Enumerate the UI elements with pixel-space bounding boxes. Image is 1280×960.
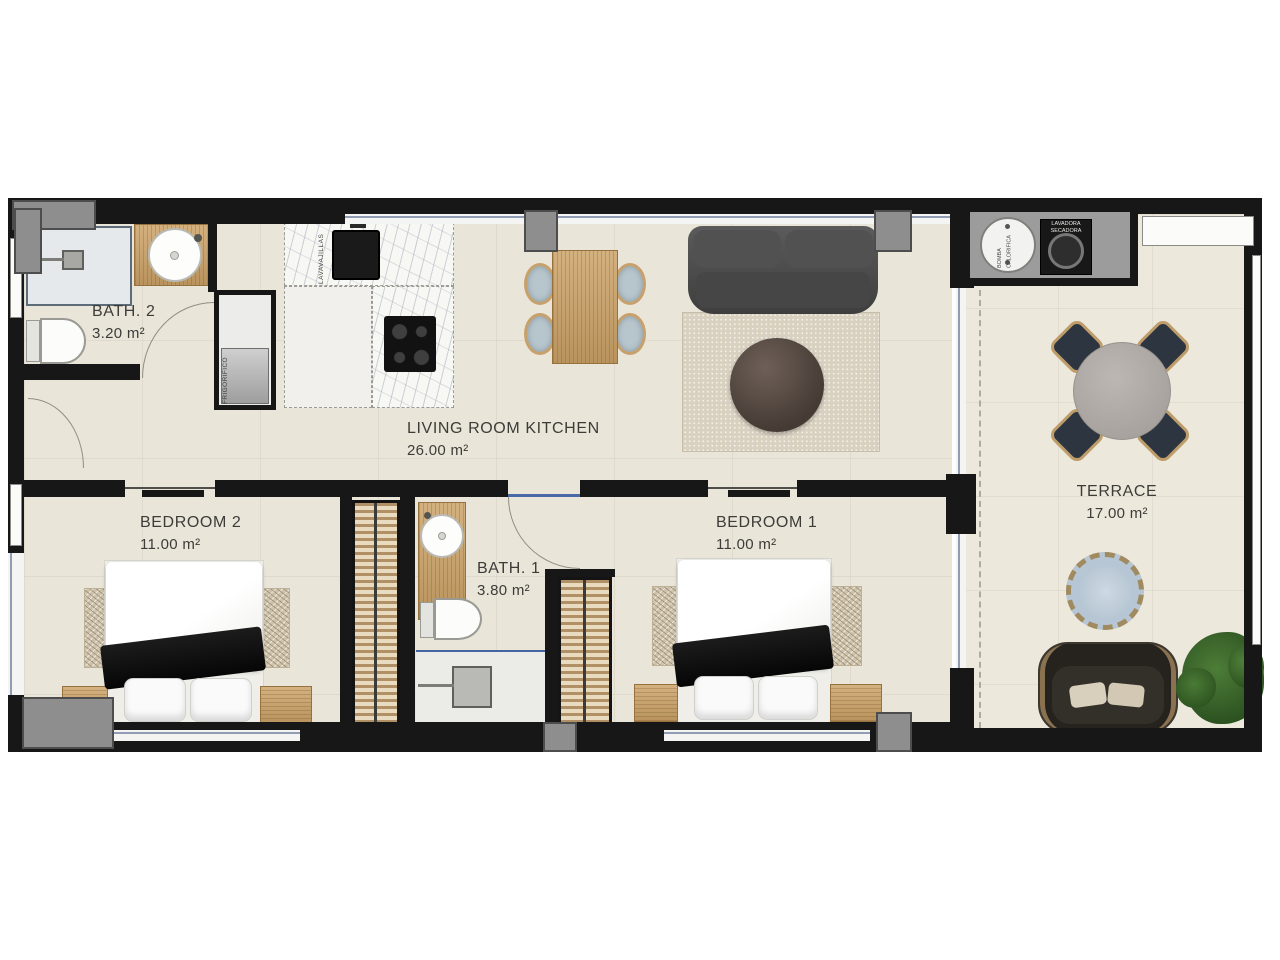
- fridge-label: FRIGORIFICO: [222, 350, 233, 404]
- nightstand: [830, 684, 882, 722]
- toilet-tank-bath1: [420, 602, 434, 638]
- sink-drain-bath1: [438, 532, 446, 540]
- sofa-back-cushion: [785, 230, 873, 268]
- wall-divider-bottom: [950, 668, 974, 752]
- wall-bedrooms-b: [215, 480, 340, 497]
- sofa-seat: [696, 272, 870, 308]
- sliding-door-leaf-bedroom1: [728, 490, 790, 497]
- nightstand: [634, 684, 678, 722]
- wall-bath1-right: [545, 569, 558, 740]
- heat-pump-label: BOMBA CALORIFICA: [996, 222, 1018, 268]
- sliding-door-leaf-bedroom2: [142, 490, 204, 497]
- room-area: 11.00 m²: [716, 534, 817, 555]
- room-label-bedroom1: BEDROOM 1 11.00 m²: [716, 512, 817, 555]
- terrace-table: [1073, 342, 1171, 440]
- toilet-tank-bath2: [26, 320, 40, 362]
- dining-chair: [614, 263, 646, 305]
- window-bedroom2-bottom: [100, 730, 300, 741]
- wardrobe-divider: [583, 580, 586, 735]
- faucet-bath1: [424, 512, 431, 519]
- outdoor-sofa-pillow: [1107, 682, 1145, 708]
- terrace-lounge-center: [1080, 566, 1132, 618]
- wardrobe-bedroom1: [558, 577, 612, 738]
- sliding-door-rail-bedroom1: [708, 487, 797, 489]
- door-leaf-bath1: [508, 494, 580, 497]
- slider-glazing-lower: [956, 534, 966, 668]
- slider-glazing-upper: [956, 288, 966, 474]
- washer-dryer-label: LAVADORA SECADORA: [1041, 221, 1091, 235]
- kitchen-sink: [332, 230, 380, 280]
- room-name: LIVING ROOM KITCHEN: [407, 418, 600, 440]
- sofa-back-cushion: [693, 230, 781, 268]
- sink-drain-bath2: [170, 251, 179, 260]
- wardrobe-divider: [374, 503, 377, 735]
- pillar-bottom-right: [876, 712, 912, 752]
- room-area: 17.00 m²: [1057, 503, 1177, 524]
- room-area: 3.80 m²: [477, 580, 540, 601]
- bed2-pillow: [124, 678, 186, 722]
- pillar-left-upper: [14, 208, 42, 274]
- kitchen-cabinet-lower: [284, 286, 372, 408]
- window-top-living: [345, 214, 950, 224]
- room-area: 3.20 m²: [92, 323, 155, 344]
- room-name: BEDROOM 2: [140, 512, 241, 534]
- sliding-door-rail-bedroom2: [125, 487, 215, 489]
- room-label-bath1: BATH. 1 3.80 m²: [477, 558, 540, 601]
- room-name: BATH. 1: [477, 558, 540, 580]
- nightstand: [260, 686, 312, 724]
- shower-head-bath2: [62, 250, 84, 270]
- wall-top-living: [345, 198, 956, 214]
- wall-bedrooms-a: [8, 480, 125, 497]
- wall-wardrobe1-left: [340, 497, 352, 740]
- outdoor-sofa: [1038, 642, 1178, 734]
- room-area: 11.00 m²: [140, 534, 241, 555]
- room-name: BEDROOM 1: [716, 512, 817, 534]
- dining-chair: [614, 313, 646, 355]
- wall-bottom-terrace: [956, 728, 1262, 752]
- room-name: TERRACE: [1057, 481, 1177, 503]
- wall-bedrooms-e: [797, 480, 952, 497]
- shower-head-bath1: [452, 666, 492, 708]
- wall-wardrobe2-top: [545, 569, 615, 577]
- shower-arm-bath1: [418, 684, 454, 687]
- bed2-pillow: [190, 678, 252, 722]
- faucet-bath2: [194, 234, 202, 242]
- coffee-table: [730, 338, 824, 432]
- pillar-bottom-mid: [543, 722, 577, 752]
- wall-bath1-left: [400, 497, 415, 740]
- planter-top-right: [1142, 216, 1254, 246]
- toilet-bowl-bath1: [434, 598, 482, 640]
- window-bedroom1-bottom: [664, 730, 870, 741]
- window-bedroom2-left: [8, 553, 24, 695]
- room-label-terrace: TERRACE 17.00 m²: [1057, 481, 1177, 524]
- wall-bath2-bottom: [8, 364, 140, 380]
- washer-door: [1048, 233, 1084, 269]
- wardrobe-bedroom2: [352, 500, 400, 738]
- dining-table: [552, 250, 618, 364]
- sofa: [688, 226, 878, 314]
- bed1-pillow: [758, 676, 818, 720]
- room-label-bedroom2: BEDROOM 2 11.00 m²: [140, 512, 241, 555]
- room-name: BATH. 2: [92, 301, 155, 323]
- toilet-bowl-bath2: [40, 318, 86, 364]
- pillar-top-right: [874, 210, 912, 252]
- bed1-pillow: [694, 676, 754, 720]
- window-hall: [10, 484, 22, 546]
- room-area: 26.00 m²: [407, 440, 600, 461]
- pillar-bottom-left: [22, 697, 114, 749]
- floor-plan: LAVAVAJILLAS FRIGORIFICO BOMBA CA: [0, 0, 1280, 960]
- planter-right: [1252, 255, 1261, 645]
- terrace-overhang-dashed-line: [979, 290, 981, 728]
- wall-bedrooms-d: [580, 480, 708, 497]
- wall-kitchen-stub: [208, 222, 217, 292]
- room-label-bath2: BATH. 2 3.20 m²: [92, 301, 155, 344]
- room-label-living: LIVING ROOM KITCHEN 26.00 m²: [407, 418, 600, 461]
- induction-hob: [384, 316, 436, 372]
- wall-bedrooms-c: [340, 480, 508, 497]
- pillar-top-mid: [524, 210, 558, 252]
- dishwasher-label: LAVAVAJILLAS: [318, 226, 330, 284]
